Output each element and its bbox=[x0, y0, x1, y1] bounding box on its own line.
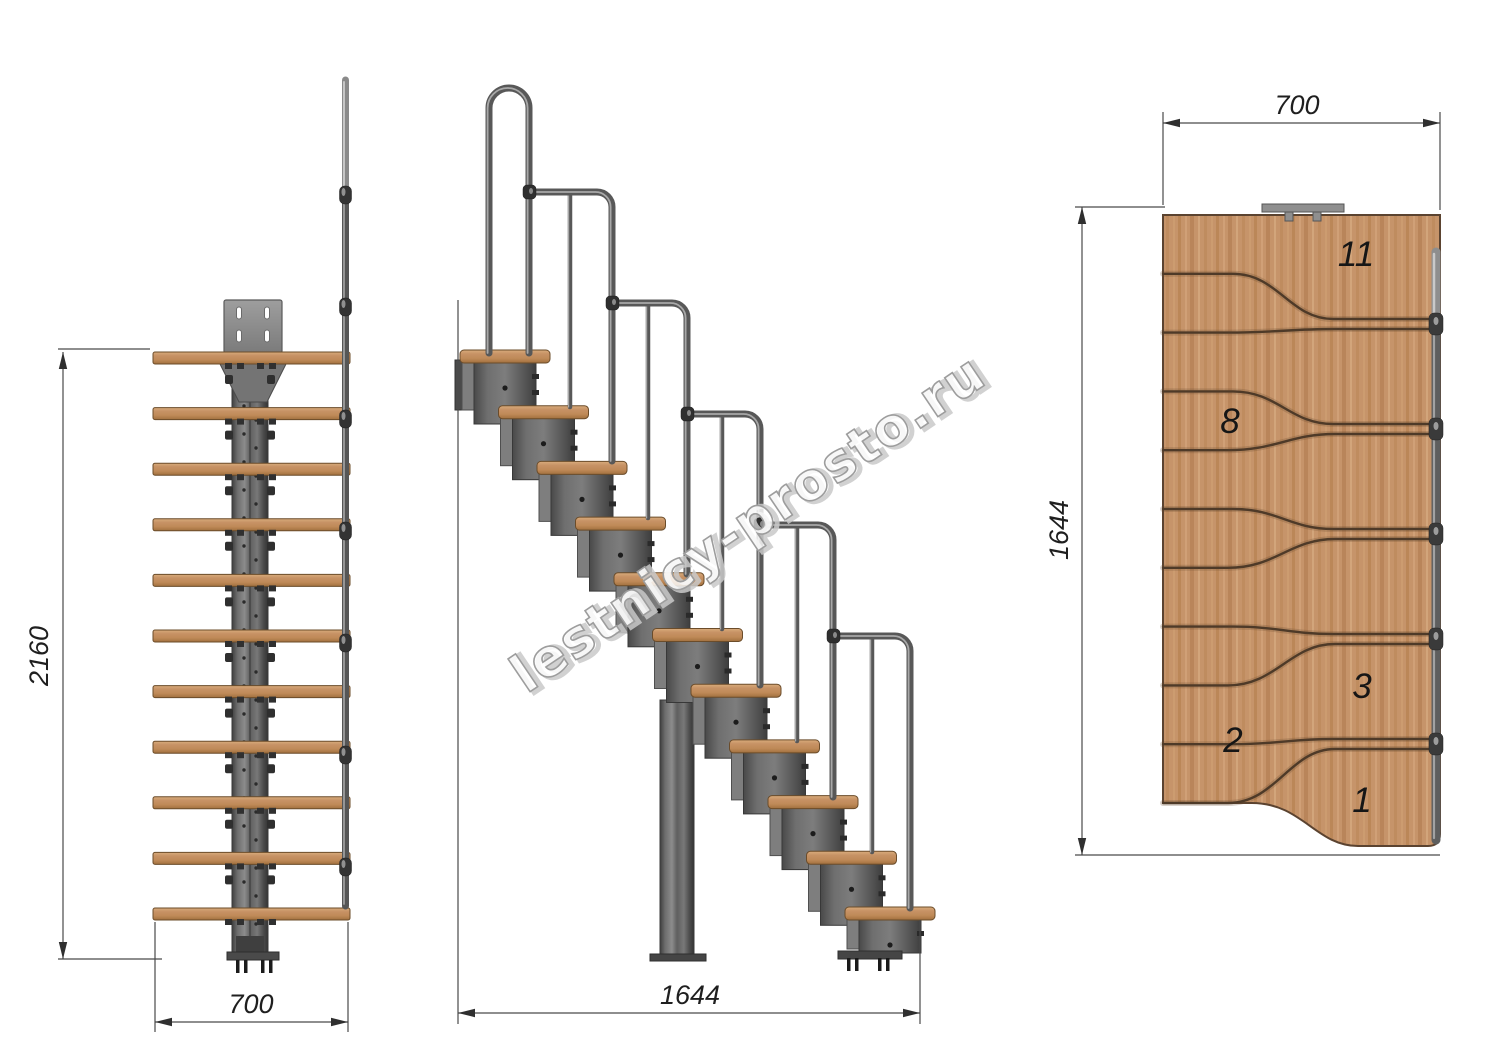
front-tread bbox=[153, 463, 350, 475]
module-bolt bbox=[733, 720, 738, 725]
column-hole bbox=[242, 600, 245, 603]
module-tab bbox=[609, 501, 616, 506]
tread-bracket bbox=[225, 697, 232, 703]
module-tab bbox=[609, 485, 616, 490]
column-lug bbox=[267, 431, 275, 440]
plate-slot bbox=[237, 307, 242, 319]
connector-highlight bbox=[1434, 527, 1439, 535]
column-hole bbox=[254, 838, 257, 841]
column-hole bbox=[254, 502, 257, 505]
column-lug bbox=[267, 875, 275, 884]
column-lug bbox=[267, 542, 275, 551]
side-tread bbox=[499, 406, 589, 419]
tread-bracket bbox=[225, 530, 232, 536]
module-bolt bbox=[618, 553, 623, 558]
column-lug bbox=[225, 875, 233, 884]
column-hole bbox=[242, 488, 245, 491]
module-tab bbox=[763, 708, 770, 713]
tread-bracket bbox=[269, 752, 276, 758]
clamp-highlight bbox=[833, 632, 837, 638]
column-hole bbox=[254, 894, 257, 897]
anchor-bolt bbox=[236, 960, 240, 973]
column-lug bbox=[267, 653, 275, 662]
front-tread bbox=[153, 630, 350, 642]
anchor-bolt bbox=[855, 958, 859, 971]
tread-bracket bbox=[269, 530, 276, 536]
module-bolt bbox=[772, 775, 777, 780]
tread-bracket bbox=[237, 474, 244, 480]
column-hole bbox=[242, 656, 245, 659]
tread-bracket bbox=[257, 808, 264, 814]
bracket-tab bbox=[1285, 212, 1293, 221]
front-tread bbox=[153, 741, 350, 753]
rail-clamp bbox=[340, 858, 352, 876]
column-lug bbox=[225, 764, 233, 773]
tread-bracket bbox=[237, 808, 244, 814]
column-lug bbox=[225, 542, 233, 551]
module-tab bbox=[571, 430, 578, 435]
module-tab bbox=[725, 653, 732, 658]
front-tread bbox=[153, 852, 350, 864]
tread-bracket bbox=[269, 419, 276, 425]
front-tread bbox=[153, 574, 350, 586]
rail-clamp bbox=[340, 298, 352, 316]
tread-bracket bbox=[237, 863, 244, 869]
clamp-highlight bbox=[687, 410, 691, 416]
staircase-drawing: 2160 700 1644 bbox=[0, 0, 1500, 1060]
connector-highlight bbox=[1434, 632, 1439, 640]
tread-bracket bbox=[257, 474, 264, 480]
tread-bracket bbox=[269, 697, 276, 703]
column-hole bbox=[242, 544, 245, 547]
plate-slot bbox=[265, 330, 270, 342]
column-lug bbox=[225, 709, 233, 718]
tread-number: 8 bbox=[1220, 402, 1240, 441]
side-tread bbox=[460, 350, 550, 363]
tread-bracket bbox=[257, 419, 264, 425]
dimension-value-height: 2160 bbox=[24, 626, 54, 687]
front-tread bbox=[153, 519, 350, 531]
column-hole bbox=[242, 880, 245, 883]
tread-bracket bbox=[237, 641, 244, 647]
tread-bracket bbox=[237, 585, 244, 591]
module-tab bbox=[725, 669, 732, 674]
clamp-highlight bbox=[342, 748, 346, 756]
module-bolt bbox=[887, 942, 892, 947]
module-tab bbox=[879, 875, 886, 880]
tread-number: 1 bbox=[1352, 781, 1371, 820]
connector-highlight bbox=[1434, 422, 1439, 430]
clamp-highlight bbox=[342, 300, 346, 308]
side-tread bbox=[768, 796, 858, 809]
column-lug bbox=[225, 486, 233, 495]
tread-bracket bbox=[257, 697, 264, 703]
support-column-foot bbox=[650, 954, 706, 961]
module-tab bbox=[840, 836, 847, 841]
clamp-highlight bbox=[342, 636, 346, 644]
tread-bracket bbox=[237, 919, 244, 925]
rail-clamp bbox=[340, 186, 352, 204]
column-lug bbox=[267, 486, 275, 495]
column-hole bbox=[242, 712, 245, 715]
dimension-value-length: 1644 bbox=[660, 980, 720, 1010]
side-support-column bbox=[660, 700, 694, 956]
module-bolt bbox=[579, 497, 584, 502]
plate-slot bbox=[265, 307, 270, 319]
connector-highlight bbox=[1434, 317, 1439, 325]
tread-bracket bbox=[237, 530, 244, 536]
tread-bracket bbox=[225, 363, 232, 369]
rail-clamp bbox=[340, 634, 352, 652]
bracket-plate bbox=[1262, 204, 1344, 212]
tread-bracket bbox=[257, 363, 264, 369]
tread-bracket bbox=[269, 585, 276, 591]
drawing-canvas: 2160 700 1644 bbox=[0, 0, 1500, 1060]
connector-highlight bbox=[1434, 737, 1439, 745]
front-tread bbox=[153, 352, 350, 364]
tread-bracket bbox=[225, 863, 232, 869]
module-bolt bbox=[849, 887, 854, 892]
tread-bracket bbox=[225, 419, 232, 425]
tread-bracket bbox=[269, 919, 276, 925]
module-tab bbox=[571, 446, 578, 451]
column-lug bbox=[267, 709, 275, 718]
rail-clamp bbox=[340, 410, 352, 428]
column-hole bbox=[254, 670, 257, 673]
module-tab bbox=[879, 891, 886, 896]
column-lug bbox=[225, 653, 233, 662]
tread-bracket bbox=[225, 641, 232, 647]
clamp-highlight bbox=[529, 188, 533, 194]
plate-slot bbox=[237, 330, 242, 342]
tread-number: 11 bbox=[1338, 235, 1374, 274]
anchor-bolt bbox=[886, 958, 890, 971]
tread-number: 2 bbox=[1222, 721, 1242, 760]
tread-bracket bbox=[237, 752, 244, 758]
module-tab bbox=[648, 541, 655, 546]
clamp-highlight bbox=[342, 860, 346, 868]
stair-module bbox=[859, 919, 921, 953]
column-lug bbox=[225, 820, 233, 829]
tread-number: 3 bbox=[1352, 667, 1372, 706]
side-tread bbox=[653, 629, 743, 642]
front-tread bbox=[153, 686, 350, 698]
dimension-value-width: 700 bbox=[228, 989, 273, 1019]
module-bolt bbox=[541, 441, 546, 446]
clamp-highlight bbox=[612, 299, 616, 305]
column-lug bbox=[267, 597, 275, 606]
anchor-bolt bbox=[847, 958, 851, 971]
column-hole bbox=[242, 432, 245, 435]
side-tread bbox=[691, 684, 781, 697]
tread-bracket bbox=[257, 919, 264, 925]
column-hole bbox=[254, 726, 257, 729]
module-bolt bbox=[695, 664, 700, 669]
tread-bracket bbox=[269, 474, 276, 480]
anchor-bolt bbox=[244, 960, 248, 973]
tread-bracket bbox=[257, 530, 264, 536]
module-tab bbox=[763, 724, 770, 729]
front-tread bbox=[153, 408, 350, 420]
bracket-tab bbox=[1313, 212, 1321, 221]
column-lug bbox=[225, 375, 233, 384]
module-tab bbox=[532, 390, 539, 395]
tread-bracket bbox=[237, 419, 244, 425]
column-lug bbox=[267, 764, 275, 773]
column-hole bbox=[242, 824, 245, 827]
anchor-bolt bbox=[269, 960, 273, 973]
tread-bracket bbox=[225, 808, 232, 814]
tread-bracket bbox=[257, 641, 264, 647]
module-tab bbox=[802, 764, 809, 769]
anchor-bolt bbox=[261, 960, 265, 973]
front-tread bbox=[153, 797, 350, 809]
module-tab bbox=[686, 613, 693, 618]
tread-bracket bbox=[237, 697, 244, 703]
column-hole bbox=[242, 768, 245, 771]
tread-bracket bbox=[237, 363, 244, 369]
side-tread bbox=[845, 907, 935, 920]
side-tread bbox=[807, 851, 897, 864]
tread-bracket bbox=[269, 363, 276, 369]
side-tread bbox=[576, 517, 666, 530]
base-plate bbox=[838, 951, 902, 959]
column-hole bbox=[254, 558, 257, 561]
dimension-value-length: 1644 bbox=[1044, 500, 1074, 560]
column-lug bbox=[267, 375, 275, 384]
tread-bracket bbox=[225, 752, 232, 758]
column-lug bbox=[225, 597, 233, 606]
tread-bracket bbox=[257, 863, 264, 869]
anchor-bolt bbox=[878, 958, 882, 971]
side-tread bbox=[730, 740, 820, 753]
module-bolt bbox=[502, 385, 507, 390]
tread-bracket bbox=[225, 474, 232, 480]
tread-bracket bbox=[269, 863, 276, 869]
tread-bracket bbox=[257, 585, 264, 591]
rail-clamp bbox=[340, 522, 352, 540]
module-tab bbox=[532, 374, 539, 379]
tread-bracket bbox=[225, 919, 232, 925]
module-tab bbox=[802, 780, 809, 785]
rail-clamp bbox=[340, 746, 352, 764]
tread-bracket bbox=[225, 585, 232, 591]
clamp-highlight bbox=[342, 188, 346, 196]
tread-bracket bbox=[269, 808, 276, 814]
column-lug bbox=[225, 431, 233, 440]
clamp-highlight bbox=[342, 412, 346, 420]
module-bolt bbox=[810, 831, 815, 836]
base-plate bbox=[227, 952, 279, 960]
front-mounting-plate bbox=[224, 300, 282, 353]
module-tab bbox=[840, 820, 847, 825]
tread-bracket bbox=[257, 752, 264, 758]
column-hole bbox=[254, 614, 257, 617]
column-lug bbox=[267, 820, 275, 829]
column-hole bbox=[254, 446, 257, 449]
clamp-highlight bbox=[342, 524, 346, 532]
dimension-value-width: 700 bbox=[1274, 90, 1319, 120]
column-hole bbox=[254, 782, 257, 785]
column-foot bbox=[236, 936, 264, 954]
front-tread bbox=[153, 908, 350, 920]
tread-bracket bbox=[269, 641, 276, 647]
